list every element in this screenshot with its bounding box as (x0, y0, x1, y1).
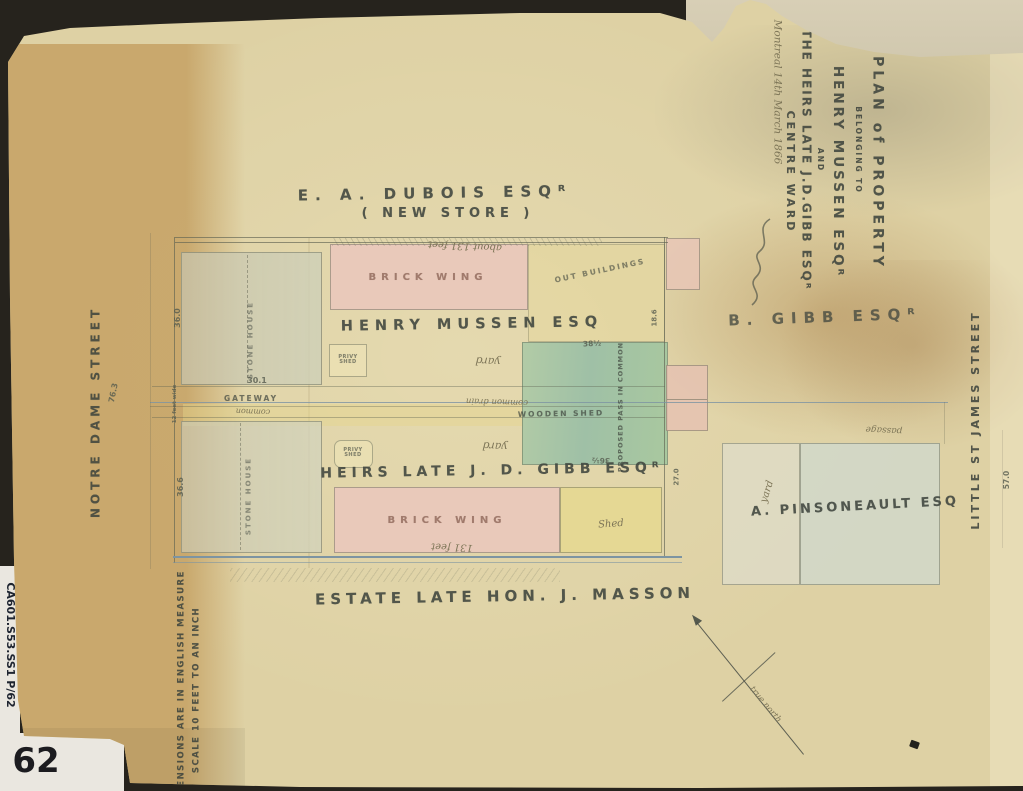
east-connector-line (944, 402, 945, 444)
label-passage: passage (865, 423, 902, 434)
parcel-brick-east-divider (667, 399, 707, 400)
dim-gateway-width: 12 feet wide (173, 385, 179, 424)
label-stone-house-lower: STONE HOUSE (245, 457, 252, 535)
dim-green-top: 38½ (583, 340, 602, 349)
label-brick-wing-lower: BRICK WING (388, 516, 507, 527)
dim-green-bottom: 36½ (592, 456, 610, 465)
north-arrow-head (689, 612, 702, 626)
boundary-south-inner (173, 562, 682, 563)
label-notre-dame-street: NOTRE DAME STREET (90, 306, 103, 518)
parcel-brick-east (666, 365, 708, 431)
plan-paper: E. A. DUBOIS ESQᴿ ( NEW STORE ) HENRY MU… (0, 0, 1023, 791)
boundary-east (664, 237, 665, 557)
division-dashed-lower (240, 423, 241, 550)
label-gateway: GATEWAY (224, 395, 278, 403)
label-brick-wing-upper: BRICK WING (369, 273, 488, 284)
boundary-south-outer (173, 556, 682, 558)
label-privy-upper: PRIVYSHED (338, 355, 357, 366)
label-masson-estate: ESTATE LATE HON. J. MASSON (315, 586, 695, 608)
label-yard-upper: yard (475, 355, 501, 368)
label-shed: Shed (598, 519, 624, 531)
scale-note-line2: DIMENSIONS ARE IN ENGLISH MEASURE (178, 570, 187, 791)
title-dateline: Montreal 14th March 1866 (771, 20, 782, 165)
label-proposed-pass: PROPOSED PASS IN COMMON (618, 342, 625, 472)
label-little-st-james-street: LITTLE ST JAMES STREET (970, 310, 982, 529)
title-line-2: BELONGING TO (854, 106, 862, 194)
label-yard-lower: yard (482, 440, 508, 453)
north-arrow-cross-line (722, 652, 776, 702)
archive-call-number: CA601.S53.SS1 P/62 (4, 582, 16, 707)
dim-upper-left-width: 36.0 (174, 308, 182, 328)
street-line-west (150, 233, 151, 569)
right-edge-light-band (990, 50, 1023, 786)
dim-east-upper: 18.6 (651, 309, 658, 326)
title-line-3: HENRY MUSSEN ESQᴿ (831, 66, 845, 278)
surveyor-signature (742, 215, 782, 310)
hatching-south-boundary (230, 568, 560, 582)
dim-east-lower: 27.0 (673, 468, 680, 485)
label-new-store: ( NEW STORE ) (362, 207, 535, 221)
dim-upper-left-base: 30.1 (247, 377, 267, 385)
title-line-4: AND (816, 148, 824, 172)
label-wooden-shed: WOODEN SHED (518, 409, 604, 418)
dim-east-block: 57.0 (1003, 471, 1011, 490)
archive-sheet-number: 62 (12, 744, 59, 780)
dim-bottom-width: 131 feet (431, 540, 473, 552)
scale-note-line1: SCALE 10 FEET TO AN INCH (193, 607, 202, 773)
parcel-brick-northeast (666, 238, 700, 290)
title-line-6: CENTRE WARD (784, 111, 796, 234)
title-line-5: THE HEIRS LATE J.D.GIBB ESQᴿ (800, 29, 813, 290)
parcel-wooden-shed-green (522, 342, 668, 465)
title-line-1: PLAN of PROPERTY (870, 56, 885, 270)
ink-blot-mark (909, 740, 920, 750)
label-heirs-gibb: HEIRS LATE J. D. GIBB ESQᴿ (320, 461, 664, 482)
label-privy-lower: PRIVYSHED (343, 448, 362, 459)
scanned-plan: E. A. DUBOIS ESQᴿ ( NEW STORE ) HENRY MU… (0, 0, 1023, 791)
dim-lower-left-width: 36.6 (177, 477, 185, 497)
north-arrow-label: true north (747, 685, 782, 725)
gateway-north-line (152, 386, 665, 387)
stain-brown-east-2 (780, 260, 1023, 450)
label-gateway-common: common (236, 406, 271, 416)
label-common-drain: common drain (466, 395, 528, 406)
label-dubois: E. A. DUBOIS ESQᴿ (298, 184, 573, 205)
label-stone-house-upper: STONE HOUSE (247, 301, 254, 379)
drain-line-inner (150, 406, 665, 407)
